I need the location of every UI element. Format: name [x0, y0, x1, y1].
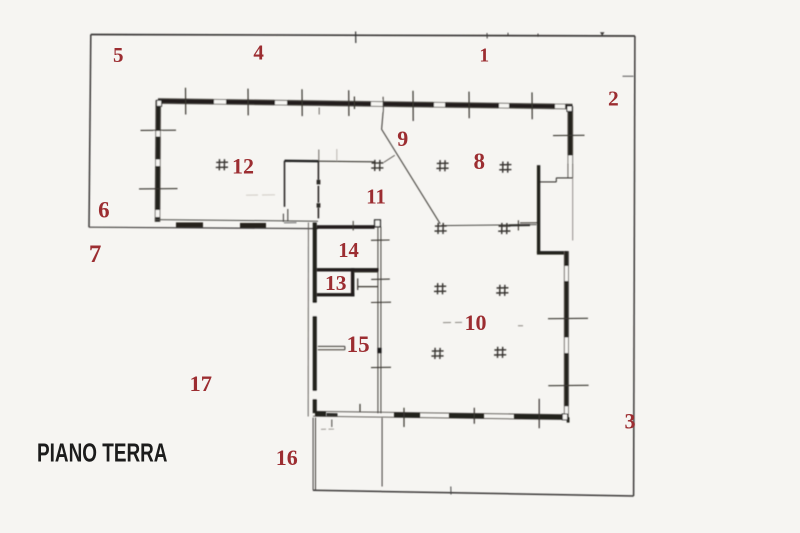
svg-text:8: 8	[474, 149, 486, 174]
svg-text:3: 3	[625, 408, 636, 433]
svg-text:4: 4	[253, 41, 264, 65]
svg-text:12: 12	[232, 153, 254, 178]
svg-text:10: 10	[465, 310, 487, 335]
svg-text:17: 17	[189, 371, 212, 396]
svg-text:1: 1	[479, 46, 489, 67]
svg-text:9: 9	[397, 126, 408, 151]
svg-text:6: 6	[98, 198, 110, 223]
svg-text:16: 16	[276, 445, 298, 470]
svg-text:14: 14	[338, 240, 359, 262]
svg-text:7: 7	[89, 241, 102, 268]
svg-text:2: 2	[608, 87, 619, 111]
svg-text:PIANO TERRA: PIANO TERRA	[37, 440, 168, 468]
svg-text:15: 15	[347, 332, 370, 357]
svg-text:5: 5	[113, 43, 124, 67]
svg-text:13: 13	[325, 271, 347, 295]
svg-text:11: 11	[366, 185, 386, 209]
